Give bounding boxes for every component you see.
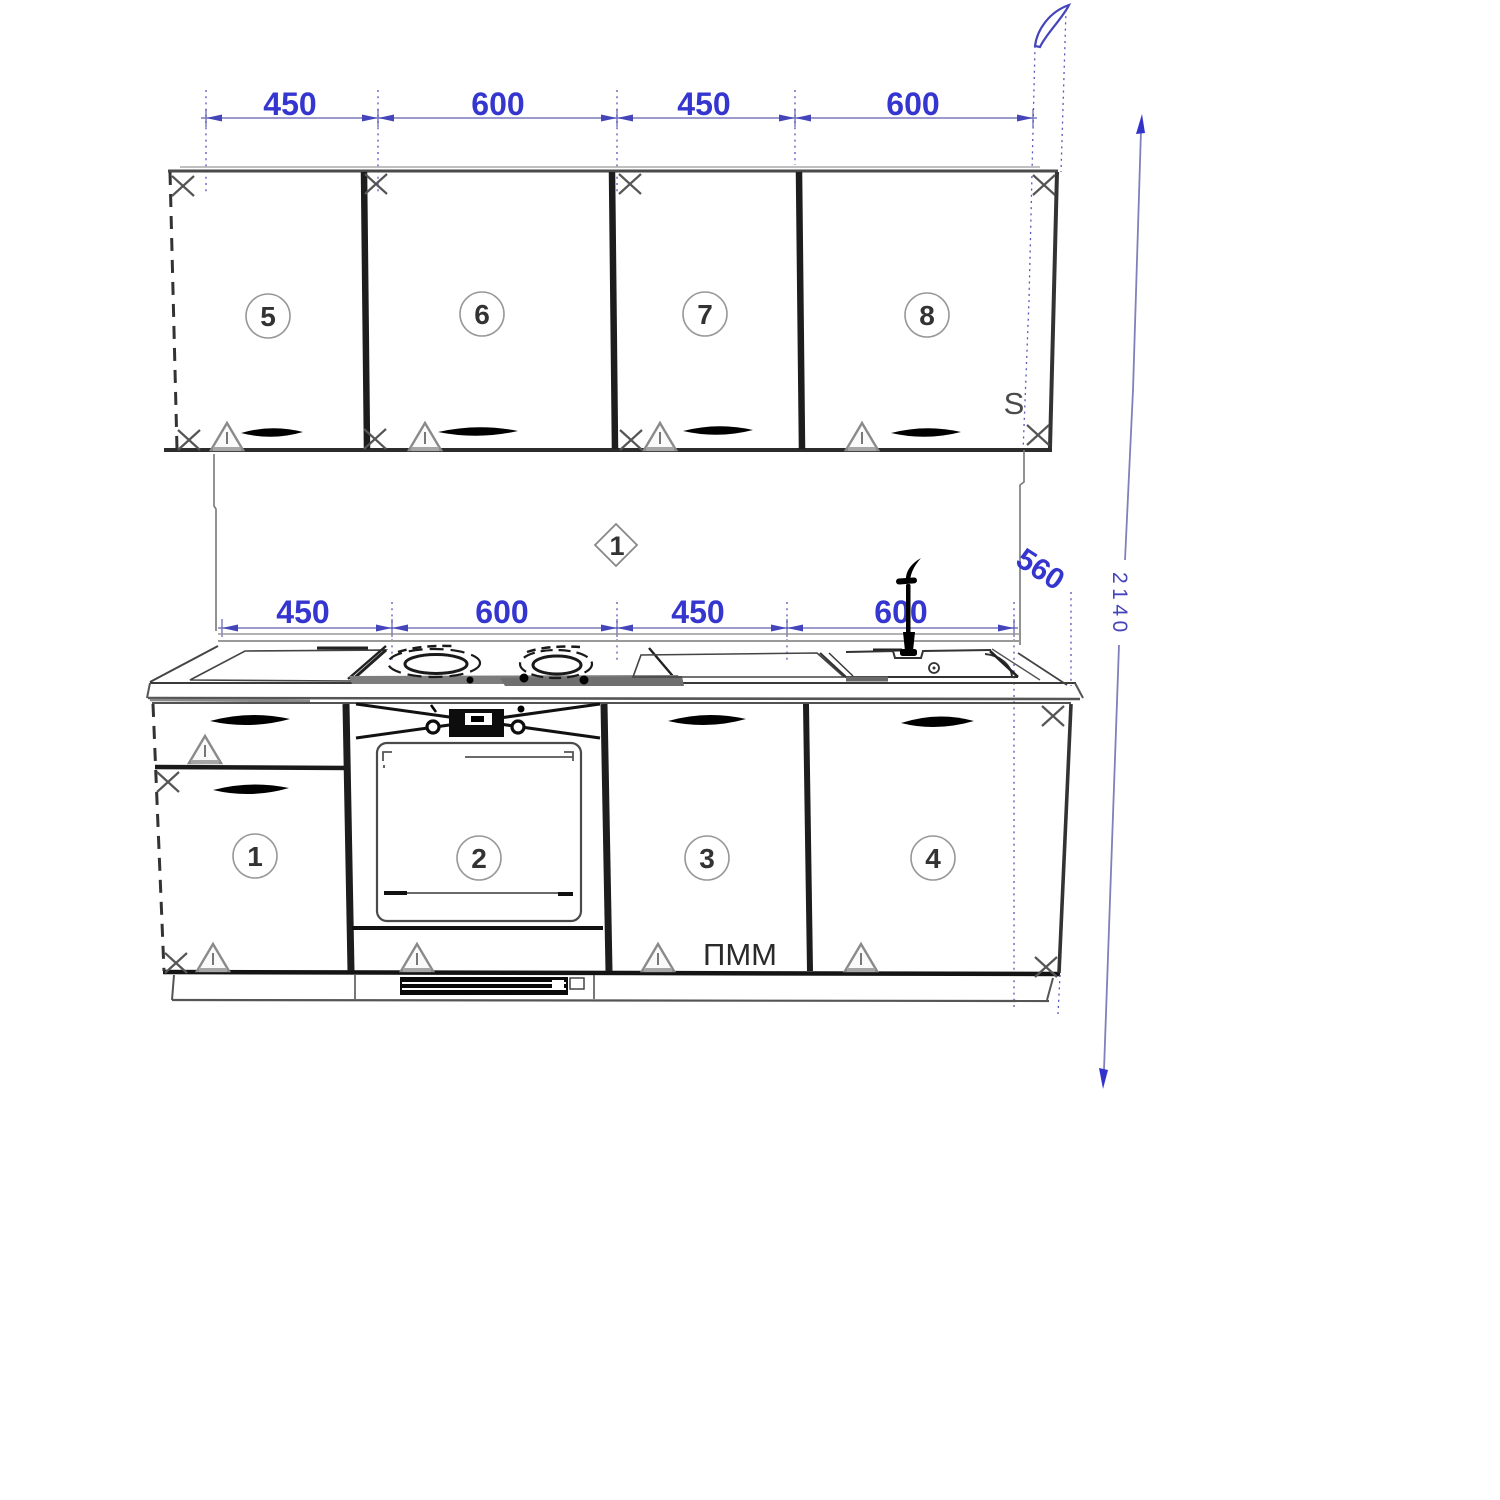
svg-text:600: 600: [475, 594, 528, 630]
svg-text:600: 600: [471, 86, 524, 122]
svg-text:600: 600: [874, 594, 927, 630]
svg-text:1: 1: [609, 531, 624, 561]
svg-text:4: 4: [925, 843, 941, 874]
svg-text:5: 5: [260, 301, 276, 332]
svg-text:3: 3: [699, 843, 715, 874]
svg-text:2140: 2140: [1108, 572, 1131, 637]
svg-text:8: 8: [919, 300, 935, 331]
svg-text:ПММ: ПММ: [703, 937, 777, 972]
svg-text:450: 450: [263, 86, 316, 122]
svg-text:450: 450: [677, 86, 730, 122]
svg-text:1: 1: [247, 841, 263, 872]
svg-text:2: 2: [471, 843, 487, 874]
svg-text:450: 450: [671, 594, 724, 630]
svg-text:600: 600: [886, 86, 939, 122]
svg-text:7: 7: [697, 299, 713, 330]
svg-text:450: 450: [276, 594, 329, 630]
svg-text:S: S: [1004, 386, 1025, 421]
svg-text:6: 6: [474, 299, 490, 330]
